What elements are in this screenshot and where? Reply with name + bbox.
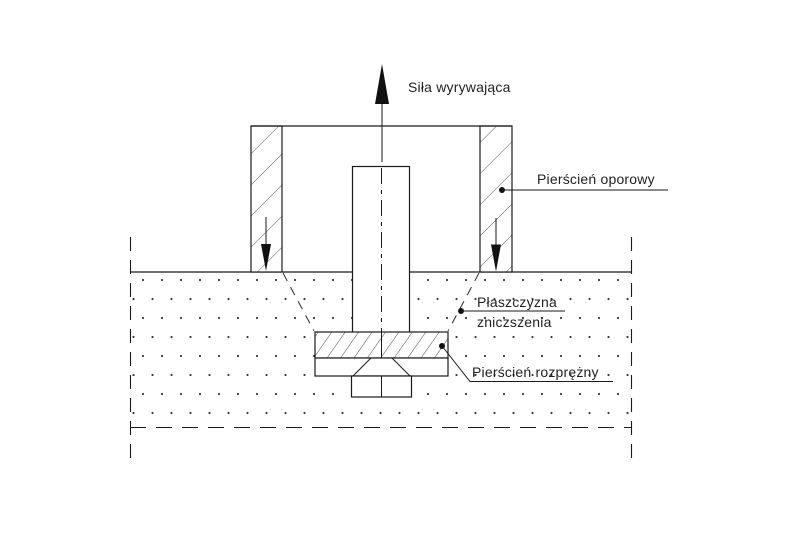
- expansion-ring-band: [315, 358, 448, 376]
- support-ring-label: Pierścień oporowy: [537, 171, 655, 187]
- force-label: Siła wyrywająca: [408, 79, 511, 95]
- failure-plane-label-line2: zniczszenia: [477, 314, 552, 330]
- expansion-ring-label: Pierścień rozprężny: [472, 364, 599, 380]
- anchor-pullout-drawing: Siła wyrywająca Pierścień oporowy Płaszc…: [0, 0, 800, 533]
- technical-diagram: Siła wyrywająca Pierścień oporowy Płaszc…: [0, 0, 800, 533]
- failure-plane-label-line1: Płaszczyzna: [477, 294, 557, 310]
- expansion-ring: [315, 332, 448, 358]
- anchor-nut: [352, 376, 412, 397]
